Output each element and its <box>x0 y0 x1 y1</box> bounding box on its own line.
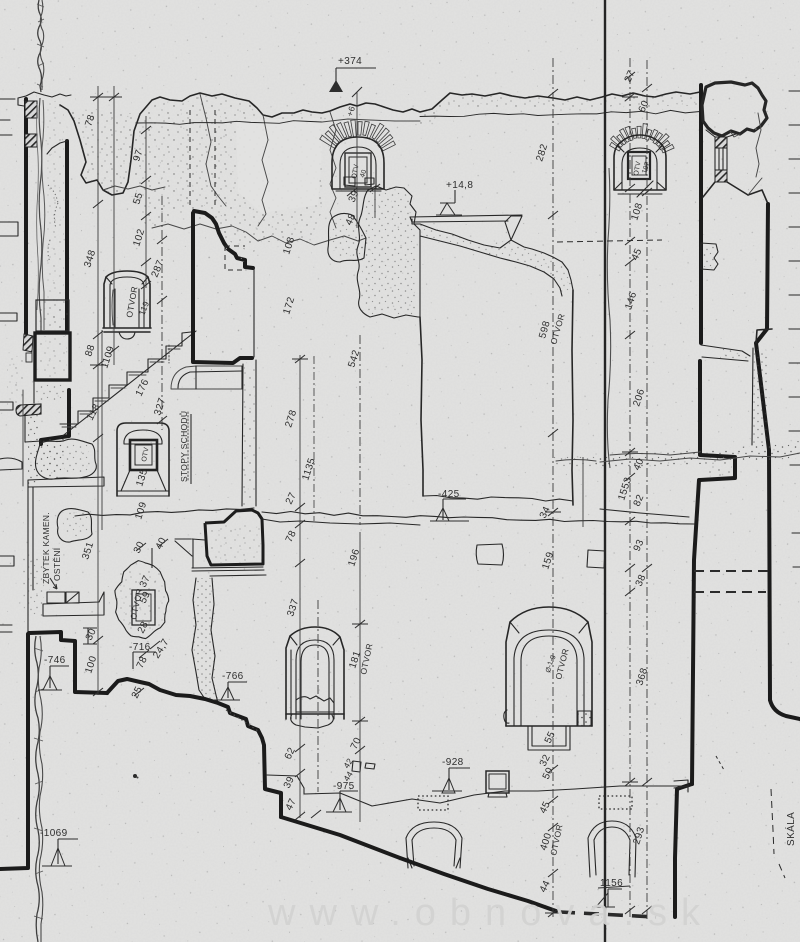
svg-text:ZBYTEK KAMEN.: ZBYTEK KAMEN. <box>41 512 51 584</box>
svg-text:-425: -425 <box>438 489 460 500</box>
svg-text:+374: +374 <box>338 56 362 67</box>
svg-text:SKÁLA: SKÁLA <box>784 812 797 846</box>
svg-text:+14,8: +14,8 <box>446 180 473 191</box>
svg-text:www.obnova.sk: www.obnova.sk <box>267 892 714 934</box>
svg-text:-746: -746 <box>44 655 66 666</box>
svg-text:-766: -766 <box>222 671 244 682</box>
svg-text:STOPY SCHODŮ: STOPY SCHODŮ <box>178 411 189 482</box>
svg-text:-928: -928 <box>442 757 464 768</box>
svg-text:-1069: -1069 <box>40 828 68 839</box>
svg-text:OSTĚNÍ: OSTĚNÍ <box>52 547 62 581</box>
svg-text:-716: -716 <box>129 642 151 653</box>
svg-text:-975: -975 <box>333 781 355 792</box>
